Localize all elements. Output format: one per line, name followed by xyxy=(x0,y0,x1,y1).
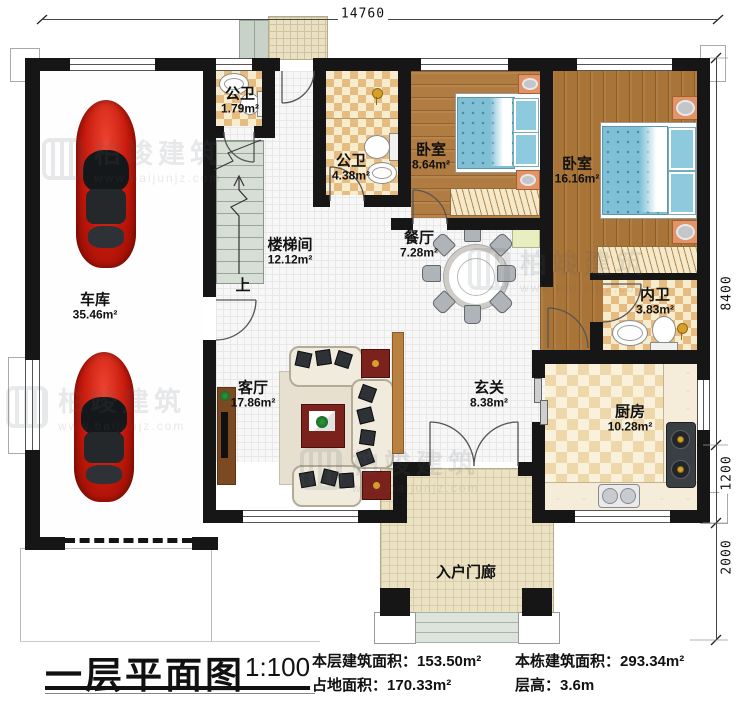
stat-label: 层高： xyxy=(515,677,560,694)
window xyxy=(575,510,670,523)
sliding-door-panel-2 xyxy=(540,400,548,425)
toilet-bowl xyxy=(652,316,676,344)
bed-small-pillow-2 xyxy=(514,133,538,166)
room-area: 8.64m² xyxy=(412,159,450,172)
room-label-bedroom-large: 卧室 16.16m² xyxy=(555,156,600,185)
right-dimension-line xyxy=(716,58,717,640)
window xyxy=(25,360,40,450)
room-label-bath-main: 公卫 4.38m² xyxy=(332,153,370,182)
burner-flame-1 xyxy=(677,436,684,443)
sofa-pillow xyxy=(299,471,316,488)
wall xyxy=(532,422,545,510)
bed-large-sheet xyxy=(640,127,667,212)
window xyxy=(243,510,358,523)
wardrobe-small xyxy=(450,188,540,216)
room-label-living: 客厅 17.86m² xyxy=(231,380,276,409)
room-area: 3.83m² xyxy=(636,304,674,317)
room-name: 厨房 xyxy=(608,404,653,420)
sofa-pillow xyxy=(315,349,332,366)
car-roof xyxy=(86,189,126,224)
sofa-pillow xyxy=(359,429,376,446)
dimension-right-bottom: 2000 xyxy=(720,536,735,577)
stat-label: 占地面积： xyxy=(312,677,387,694)
tv-plant xyxy=(220,391,230,401)
floor-plan-canvas: 14760 8400 1200 2000 车库 35.46m² 公卫 1.79m… xyxy=(0,0,750,703)
wall xyxy=(532,350,710,364)
bed-small-sheet xyxy=(490,98,512,166)
planter-left xyxy=(8,357,26,454)
tv xyxy=(221,412,228,458)
room-area: 8.38m² xyxy=(470,397,508,410)
wall xyxy=(203,340,216,523)
side-table-bottom xyxy=(362,471,391,500)
room-name: 内卫 xyxy=(636,287,674,303)
room-label-ensuite: 内卫 3.83m² xyxy=(636,287,674,316)
shower-head xyxy=(372,88,383,99)
nightstand xyxy=(518,74,542,94)
dimension-right-mid: 1200 xyxy=(720,452,735,493)
porch-step-3 xyxy=(410,632,524,643)
room-area: 12.12m² xyxy=(267,254,312,267)
dining-chair xyxy=(464,305,481,324)
car-top xyxy=(76,100,136,268)
kitchen-sink-basin-2 xyxy=(620,488,636,504)
room-area: 16.16m² xyxy=(555,173,600,186)
stat-value: 3.6m xyxy=(560,677,594,694)
room-label-foyer: 玄关 8.38m² xyxy=(470,380,508,409)
room-name: 卧室 xyxy=(412,142,450,158)
foyer-partition xyxy=(392,332,404,454)
wall xyxy=(590,273,710,280)
bath-main-partition xyxy=(326,118,398,119)
wardrobe-large xyxy=(597,246,699,275)
car-rear-window xyxy=(86,465,122,485)
sofa-pillow xyxy=(338,472,354,488)
room-label-garage: 车库 35.46m² xyxy=(73,292,118,321)
shower-stem xyxy=(681,332,682,340)
bed-small-pillow-1 xyxy=(514,99,538,132)
driveway xyxy=(20,548,212,642)
wall xyxy=(313,58,326,207)
room-area: 35.46m² xyxy=(73,309,118,322)
wall xyxy=(192,537,218,550)
wall xyxy=(532,510,575,523)
bed-large-pillow-1 xyxy=(669,128,695,170)
room-label-porch: 入户门廊 xyxy=(436,565,496,581)
wall xyxy=(216,126,224,138)
dimension-right-top: 8400 xyxy=(720,272,735,313)
up-text: 上 xyxy=(235,278,250,294)
car-bottom xyxy=(74,352,134,502)
stair-up-label: 上 xyxy=(235,278,250,294)
wall xyxy=(313,195,330,207)
wall xyxy=(697,58,710,380)
room-name: 楼梯间 xyxy=(267,237,312,253)
car-windshield xyxy=(83,150,129,192)
wall xyxy=(25,537,65,550)
stat-value: 153.50m² xyxy=(417,653,481,670)
wall xyxy=(25,58,40,360)
wall xyxy=(25,450,40,550)
stat-total-area: 本栋建筑面积：293.34m² xyxy=(515,650,684,671)
room-area: 7.28m² xyxy=(400,247,438,260)
room-name: 卧室 xyxy=(555,156,600,172)
chimney-gray xyxy=(239,20,270,60)
stat-label: 本层建筑面积： xyxy=(312,653,417,670)
porch-pillar-left xyxy=(380,588,410,616)
wall xyxy=(590,322,603,350)
room-label-kitchen: 厨房 10.28m² xyxy=(608,404,653,433)
plan-scale: 1:100 xyxy=(245,652,310,683)
sink xyxy=(367,162,397,184)
room-name: 客厅 xyxy=(231,380,276,396)
wall xyxy=(203,58,216,297)
room-label-dining: 餐厅 7.28m² xyxy=(400,230,438,259)
wall xyxy=(393,462,407,523)
window xyxy=(70,58,155,71)
car-windshield xyxy=(81,397,127,435)
room-name: 入户门廊 xyxy=(436,565,496,581)
bed-large-pillow-2 xyxy=(669,172,695,214)
stat-value: 170.33m² xyxy=(387,677,451,694)
dimension-top: 14760 xyxy=(338,7,388,22)
nightstand xyxy=(672,220,699,244)
window xyxy=(216,58,252,71)
shower-stem xyxy=(376,97,377,105)
porch-pillar-base-right xyxy=(518,612,560,644)
nightstand xyxy=(516,170,540,190)
room-area: 10.28m² xyxy=(608,421,653,434)
window xyxy=(697,380,710,430)
coffee-table-plant xyxy=(316,416,328,428)
porch-pillar-right xyxy=(522,588,552,616)
porch-pillar-base-left xyxy=(374,612,416,644)
dining-chair xyxy=(497,265,516,282)
car-roof xyxy=(84,432,124,464)
side-table-top xyxy=(361,349,390,378)
nightstand xyxy=(672,96,699,120)
wall xyxy=(670,510,710,523)
wall xyxy=(447,218,545,230)
stat-floor-area: 本层建筑面积：153.50m² xyxy=(312,650,481,671)
room-area: 4.38m² xyxy=(332,170,370,183)
wall xyxy=(391,218,413,230)
room-label-bedroom-small: 卧室 8.64m² xyxy=(412,142,450,171)
wall xyxy=(398,58,411,207)
ground-line xyxy=(20,641,320,642)
room-label-bath-small: 公卫 1.79m² xyxy=(221,86,259,115)
room-name: 餐厅 xyxy=(400,230,438,246)
plan-title: 一层平面图 xyxy=(45,645,245,699)
dining-chair xyxy=(422,265,441,282)
staircase xyxy=(216,140,264,284)
room-name: 玄关 xyxy=(470,380,508,396)
room-name: 车库 xyxy=(73,292,118,308)
garage-door xyxy=(65,538,192,543)
kitchen-sink-basin-1 xyxy=(602,488,618,504)
sofa-pillow xyxy=(295,351,313,369)
stat-footprint-area: 占地面积：170.33m² xyxy=(312,674,451,695)
window xyxy=(577,58,672,71)
title-underline-thin xyxy=(45,693,315,694)
room-area: 1.79m² xyxy=(221,103,259,116)
stat-value: 293.34m² xyxy=(620,653,684,670)
burner-flame-2 xyxy=(677,466,684,473)
shower-head xyxy=(677,323,688,334)
stat-floor-height: 层高：3.6m xyxy=(515,674,594,695)
room-name: 公卫 xyxy=(332,153,370,169)
kitchen-counter-edge-v xyxy=(663,364,664,482)
wall xyxy=(254,126,275,138)
sink xyxy=(612,320,648,346)
wall xyxy=(540,58,553,287)
room-label-stairwell: 楼梯间 12.12m² xyxy=(267,237,312,266)
window xyxy=(421,58,508,71)
title-underline-thick xyxy=(45,686,310,690)
car-rear-window xyxy=(88,226,124,248)
room-name: 公卫 xyxy=(221,86,259,102)
chimney-beige xyxy=(268,16,328,60)
stat-label: 本栋建筑面积： xyxy=(515,653,620,670)
room-area: 17.86m² xyxy=(231,397,276,410)
